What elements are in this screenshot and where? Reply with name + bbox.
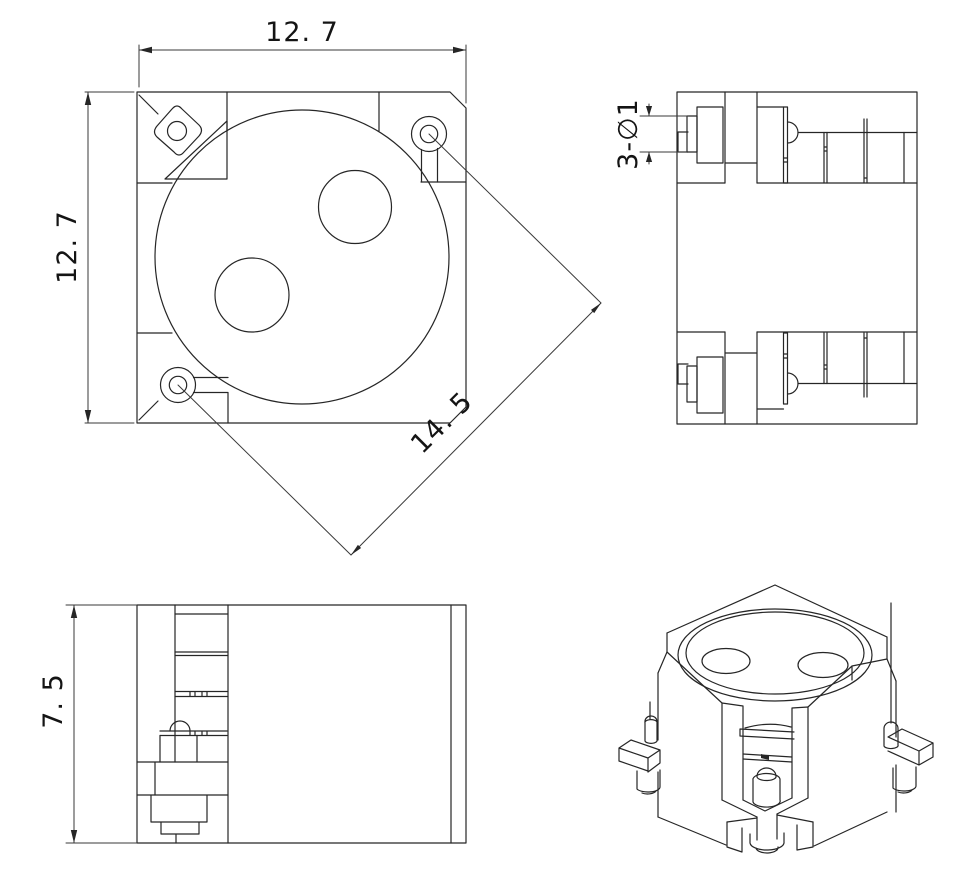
internal-shelf	[740, 729, 794, 739]
shelf-edge	[175, 692, 228, 697]
pin-body	[687, 116, 697, 152]
foot-block	[137, 795, 228, 843]
iso-top-front-edge	[667, 652, 887, 707]
extension-line	[640, 116, 688, 152]
block-edge	[160, 736, 228, 763]
dim-left-height: 12. 7	[52, 92, 134, 423]
rib-lines	[864, 119, 867, 183]
mount-hole-stem	[194, 378, 229, 424]
internal-pin	[753, 773, 780, 807]
plate-edge	[160, 731, 227, 736]
top-view-outline	[137, 92, 466, 423]
inner-hole-lower	[215, 258, 289, 332]
arrowhead	[71, 605, 77, 618]
top-hole-right	[798, 653, 848, 678]
rib-lines	[824, 133, 827, 184]
right-flange	[888, 729, 933, 765]
bottom-tab	[727, 822, 742, 852]
arrowhead	[139, 47, 152, 53]
pin-block	[697, 357, 723, 413]
corner-chamfer-edge	[139, 95, 158, 114]
left-flange	[619, 740, 660, 772]
mount-hole-stem	[422, 149, 438, 183]
rib-lines	[864, 333, 867, 397]
arrowhead	[85, 92, 91, 105]
extension-line	[85, 92, 134, 423]
side-view: 3-∅1	[613, 92, 917, 424]
top-view: 12. 7 12. 7 14. 5	[52, 17, 601, 555]
cutaway-wall	[722, 703, 808, 800]
dim-top-width: 12. 7	[139, 17, 466, 103]
cutaway-bore-arc	[745, 724, 791, 728]
contact-bar	[784, 333, 788, 404]
left-flange-cylinder	[637, 770, 660, 794]
iso-body-edge	[667, 633, 887, 659]
arrowhead	[71, 830, 77, 843]
slot-edge	[725, 332, 757, 424]
arrowhead	[85, 410, 91, 423]
extension-line	[178, 385, 351, 555]
contact-bar	[784, 107, 788, 183]
main-bore-circle	[155, 110, 449, 404]
drawing-canvas: 12. 7 12. 7 14. 5	[0, 0, 972, 876]
dim-front-height: 7. 5	[38, 605, 137, 843]
bottom-wing	[727, 815, 813, 822]
dim-front-height-label: 7. 5	[38, 673, 69, 729]
front-view: 7. 5	[38, 605, 466, 843]
dome-contact	[788, 373, 799, 394]
corner-tab	[155, 106, 202, 155]
corner-tab-hole	[168, 122, 187, 141]
rib-lines	[824, 333, 827, 384]
dome-contact	[170, 721, 190, 731]
bottom-block	[757, 814, 777, 840]
shelf-edge	[175, 652, 228, 656]
bottom-pin	[750, 833, 784, 853]
bottom-tab	[797, 822, 813, 850]
slot-edge	[725, 92, 757, 183]
corner-chamfer-edge	[139, 401, 158, 420]
extension-line	[139, 45, 466, 103]
dome-contact	[788, 122, 799, 143]
dimension-line	[351, 303, 601, 555]
triangle-flag	[165, 121, 227, 179]
top-hole-left	[702, 649, 750, 674]
arrowhead	[453, 47, 466, 53]
iso-side-edge	[658, 765, 896, 817]
dim-left-height-label: 12. 7	[52, 210, 83, 284]
dim-pin-diameter-label: 3-∅1	[613, 98, 644, 170]
pin-block	[697, 107, 723, 163]
arrowhead	[646, 106, 652, 116]
inner-hole-upper	[319, 171, 392, 244]
isometric-view	[619, 585, 933, 853]
bottom-edge	[658, 812, 887, 846]
dim-diagonal: 14. 5	[178, 134, 601, 555]
top-rim-outer	[678, 609, 872, 701]
step-edge	[137, 762, 160, 795]
extension-line	[429, 134, 601, 303]
arrowhead	[646, 152, 652, 162]
top-rim-inner	[686, 612, 864, 694]
iso-body-edge	[667, 585, 887, 637]
dim-top-width-label: 12. 7	[265, 17, 339, 48]
iso-side-edge	[658, 673, 896, 740]
cad-drawing: 12. 7 12. 7 14. 5	[0, 0, 972, 876]
extension-line	[66, 605, 137, 843]
left-pin	[645, 716, 657, 743]
side-view-outline	[677, 92, 917, 424]
